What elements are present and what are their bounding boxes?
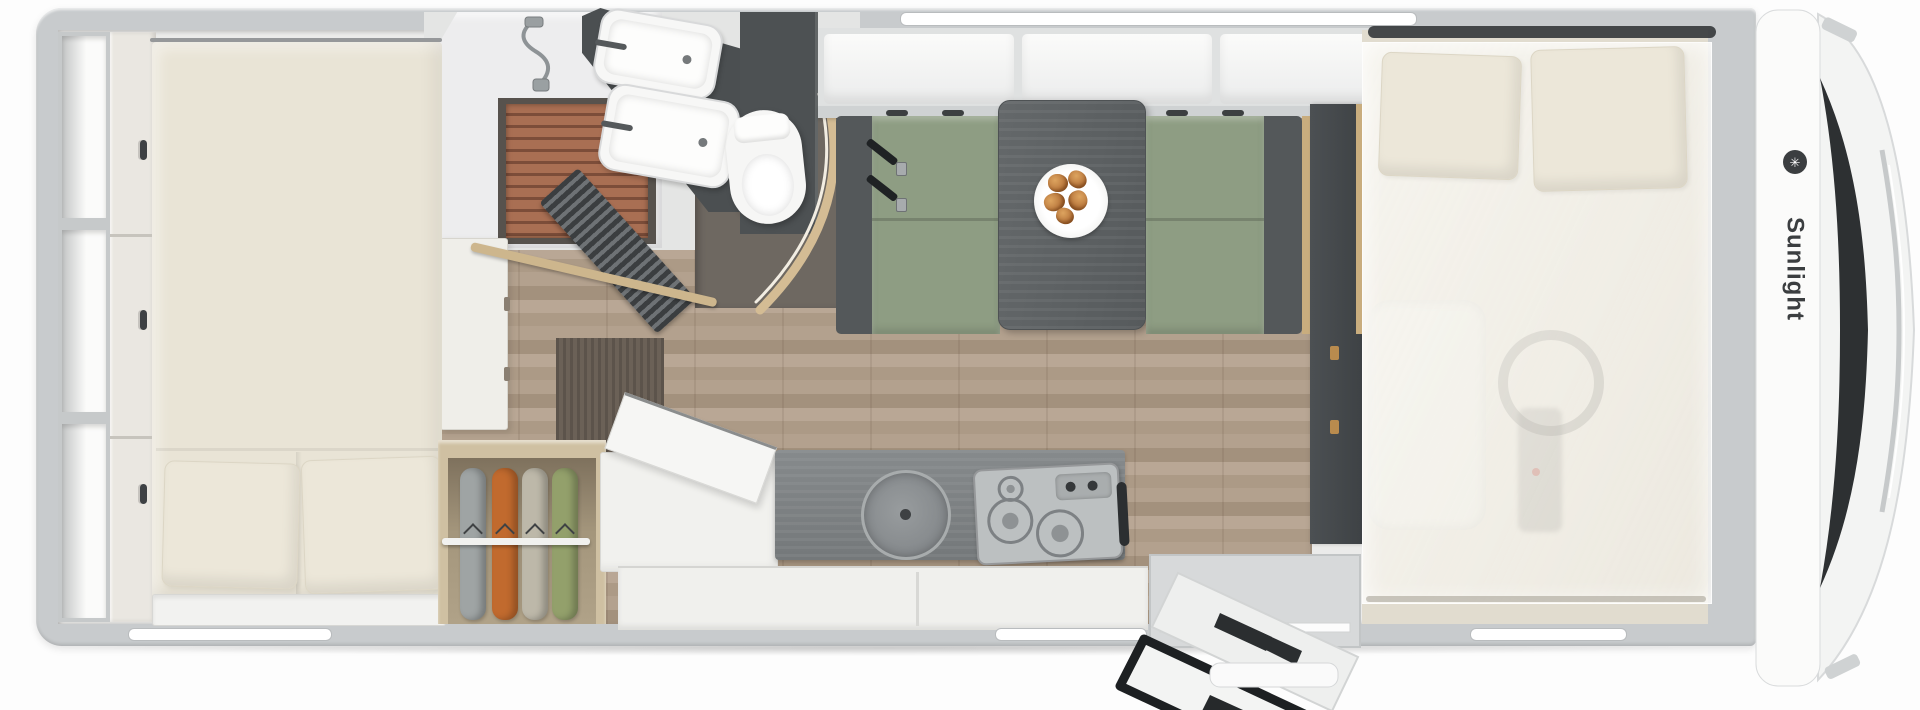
burner-icon: [986, 497, 1034, 545]
pastry: [1065, 167, 1090, 191]
cushion-seam: [872, 218, 1000, 221]
motorhome-floorplan: ✳ Sunlight: [0, 0, 1920, 710]
cabinet-handle-icon: [140, 310, 147, 330]
drawer-divider: [916, 572, 919, 626]
clothes-rail: [442, 538, 590, 545]
knob-icon: [1065, 482, 1076, 493]
bench-right-seat: [1146, 116, 1264, 334]
hinge-icon: [1330, 420, 1339, 434]
drop-down-bed-pillow: [1378, 52, 1522, 181]
shelf-compartment: [62, 36, 106, 218]
washbasin-bowl: [602, 17, 714, 90]
headrest-bracket-icon: [886, 110, 908, 116]
kitchen-sink: [861, 470, 951, 560]
wardrobe: [438, 440, 606, 624]
entrance: [1060, 535, 1480, 710]
blanket-fold: [156, 448, 438, 451]
bedroom-cabinet-column: [110, 32, 156, 622]
cabinet-handle-icon: [140, 484, 147, 504]
bench-left-seat: [872, 116, 1000, 334]
bed-pillow: [301, 456, 446, 595]
cab-front: [1700, 0, 1920, 710]
cabinet-seam: [110, 234, 156, 237]
rear-storage-shelves: [58, 32, 110, 622]
knob-icon: [1087, 480, 1098, 491]
headrest-bracket-icon: [1222, 110, 1244, 116]
overhead-lockers: [818, 28, 1420, 108]
locker-door: [1022, 34, 1212, 104]
sunlight-gear-icon: ✳: [1783, 150, 1807, 174]
drain-icon: [900, 509, 911, 520]
breakfast-plate: [1034, 164, 1108, 238]
cushion-seam: [1146, 218, 1264, 221]
seatbelt-buckle-icon: [896, 198, 907, 212]
bed-foot-shelf: [152, 594, 446, 626]
window-bottom-rear: [128, 628, 332, 641]
window-top: [900, 12, 1417, 26]
locker-door: [824, 34, 1014, 104]
seatbelt-buckle-icon: [896, 162, 907, 176]
headrest-bracket-icon: [942, 110, 964, 116]
bench-right-backrest: [1264, 116, 1302, 334]
pastry: [1048, 174, 1068, 192]
hinge-icon: [1330, 346, 1339, 360]
fold-out-step: [1210, 663, 1338, 687]
hob-control-panel: [1055, 472, 1112, 501]
headrest-bracket-icon: [1166, 110, 1188, 116]
window-bottom-cab: [1470, 628, 1627, 641]
shower-fitting-icon: [495, 15, 585, 105]
burner-icon: [997, 475, 1024, 502]
drop-down-bed-pillow: [1530, 46, 1688, 192]
bench-left-backrest: [836, 116, 872, 334]
hinge-icon: [504, 297, 510, 311]
shelf-compartment: [62, 424, 106, 618]
hinge-icon: [504, 367, 510, 381]
sunlight-logo-text: Sunlight: [1781, 187, 1809, 352]
sideboard-cabinet: [1310, 104, 1362, 544]
interior-door-leaf: [440, 238, 508, 430]
bed-pillow: [161, 460, 300, 590]
cabinet-seam: [110, 436, 156, 439]
drop-down-bed-rail: [1368, 26, 1716, 38]
shelf-compartment: [62, 230, 106, 412]
cabinet-handle-icon: [140, 140, 147, 160]
